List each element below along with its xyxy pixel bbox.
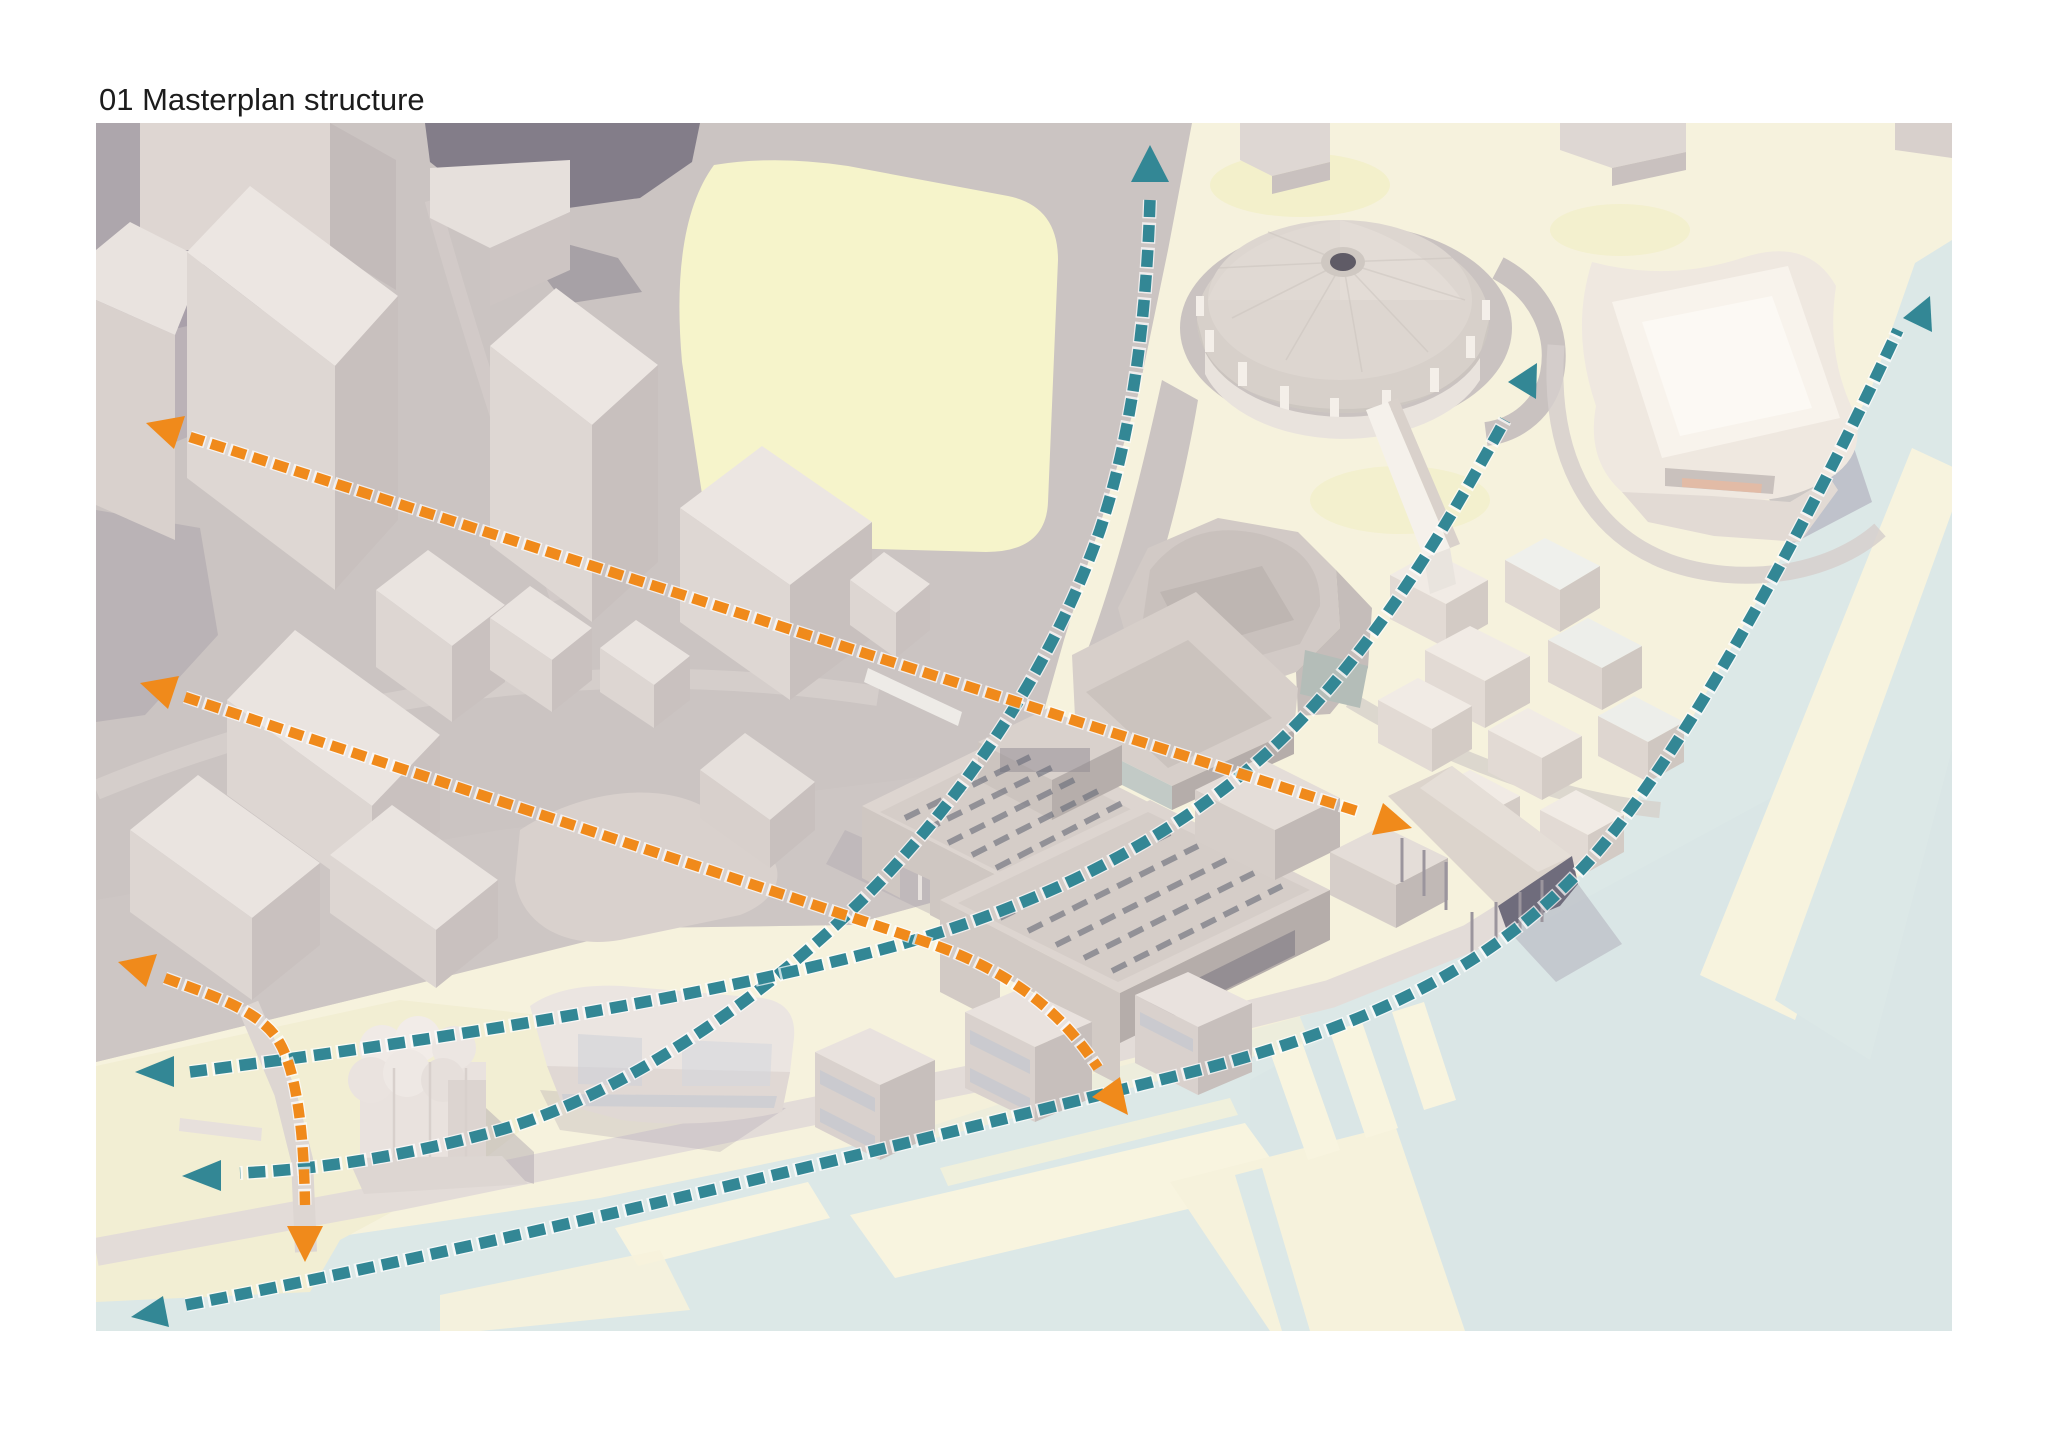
svg-text:01 Masterplan structure: 01 Masterplan structure [99, 82, 425, 117]
